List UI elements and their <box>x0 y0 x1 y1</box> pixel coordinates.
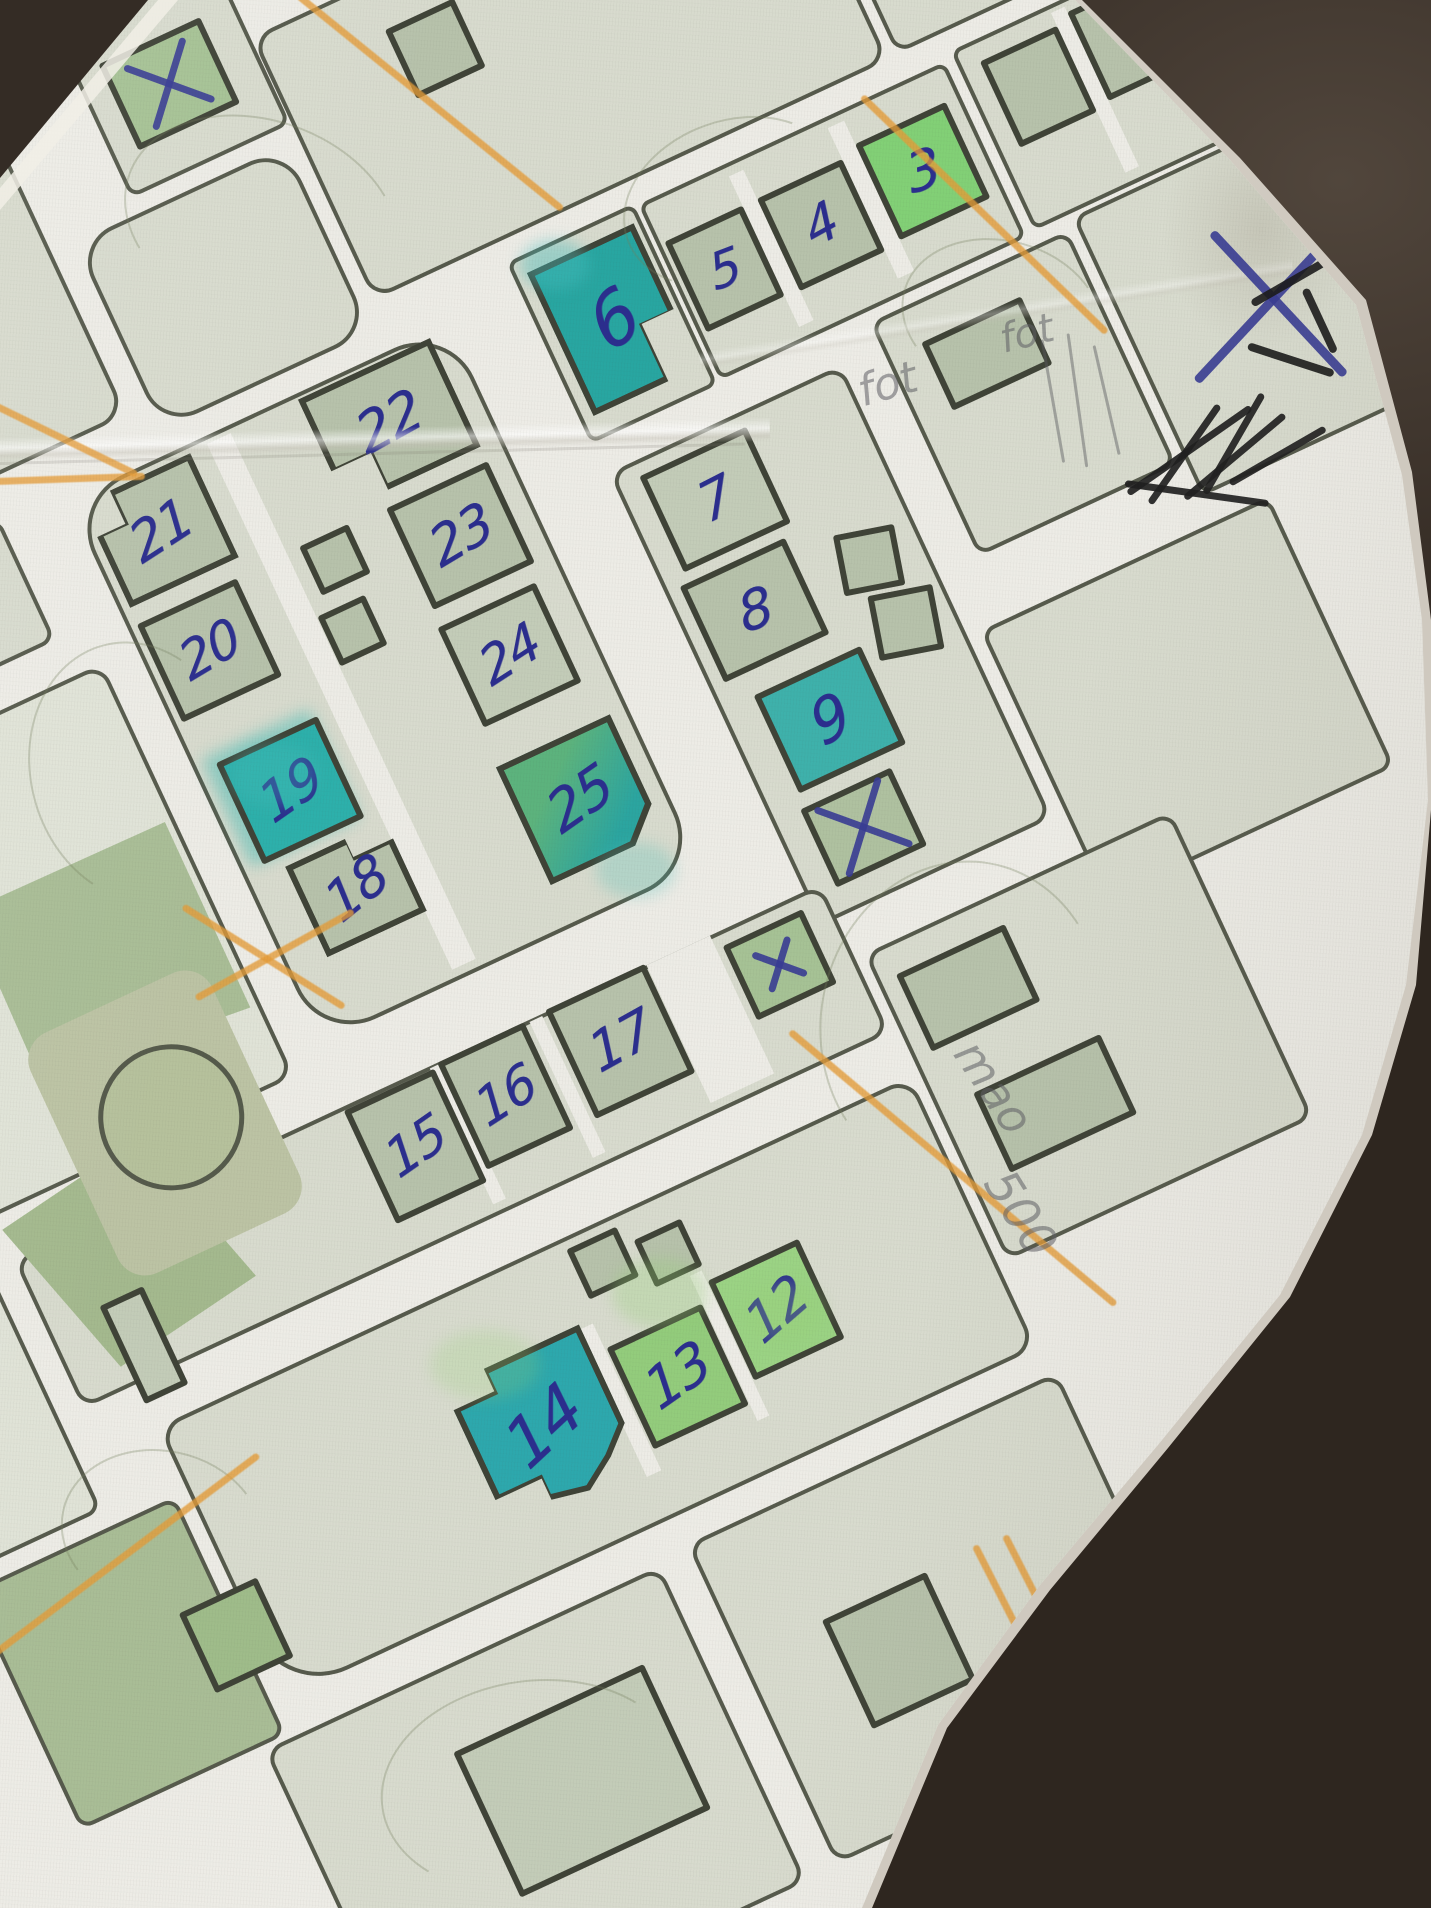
building-number-15: 15 <box>377 1106 453 1187</box>
building-unnumbered <box>867 584 944 661</box>
building-number-7: 7 <box>691 467 739 532</box>
building-number-6: 6 <box>577 275 650 363</box>
handwritten-x-stroke <box>845 776 882 878</box>
building-number-8: 8 <box>732 578 776 642</box>
building-number-16: 16 <box>468 1056 544 1136</box>
marker-smudge <box>612 1258 708 1328</box>
building-number-24: 24 <box>472 615 548 695</box>
building-number-13: 13 <box>637 1333 719 1421</box>
building-number-21: 21 <box>121 489 200 573</box>
marker-smudge <box>742 1282 826 1342</box>
building-number-9: 9 <box>802 683 859 756</box>
building-number-25: 25 <box>539 756 621 844</box>
map-photo-scene: 21201918222324256543789151617141312 fotf… <box>0 0 1431 1908</box>
building-number-18: 18 <box>316 846 396 932</box>
building-unnumbered <box>833 524 906 597</box>
marker-smudge <box>430 1330 540 1400</box>
building-number-23: 23 <box>421 494 499 577</box>
marker-smudge <box>520 240 590 290</box>
marker-smudge <box>228 742 318 806</box>
building-number-17: 17 <box>581 1001 659 1082</box>
marker-smudge <box>596 842 676 898</box>
